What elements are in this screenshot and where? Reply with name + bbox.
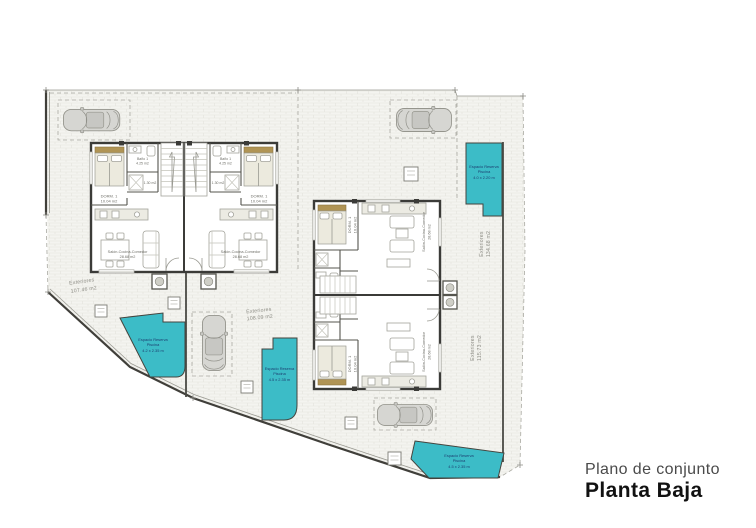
utility-box-icon <box>95 305 107 317</box>
living-area: 28.68 m2 <box>233 255 249 259</box>
plan-title: Planta Baja <box>585 479 720 502</box>
bath-label: Baño 1 <box>137 157 148 161</box>
pool-dimensions: 4.2 x 2.35 m <box>142 348 163 353</box>
utility-box-icon <box>345 417 357 429</box>
bath-area: 4.25 m2 <box>219 162 232 166</box>
living-area: 28.68 m2 <box>120 255 136 259</box>
title-block: Plano de conjunto Planta Baja <box>585 461 720 502</box>
utility-box-icon <box>404 167 418 181</box>
site-plan-drawing: DORM. 1 10.04 m2 Baño 1 4.25 m2 1.30 m2 … <box>0 0 756 528</box>
closet-area: 1.30 m2 <box>212 181 225 185</box>
pool-dimensions: 4.5 x 2.35 m <box>448 464 469 469</box>
car-icon <box>200 315 227 370</box>
closet-area: 1.30 m2 <box>144 181 157 185</box>
bath-area: 4.25 m2 <box>136 162 149 166</box>
porch-planter-icon <box>155 277 164 286</box>
car-icon <box>377 402 432 427</box>
bedroom-area: 10.04 m2 <box>353 216 358 233</box>
left-building <box>90 141 279 289</box>
bedroom-area: 10.04 m2 <box>353 355 358 372</box>
living-label: Salón-Cocina-Comedor <box>108 250 148 254</box>
pool-label: Piscina <box>147 342 160 347</box>
bedroom-label: DORM. 1 <box>347 355 352 372</box>
porch-planter-icon <box>204 277 213 286</box>
pool-dimensions: 4.0 x 2.20 m <box>473 175 494 180</box>
living-area: 28.68 m2 <box>428 344 432 360</box>
utility-box-icon <box>168 297 180 309</box>
pool-dimensions: 4.5 x 2.35 m <box>269 377 290 382</box>
exterior-area: 134.68 m2 <box>486 231 492 257</box>
floor-plan-page: DORM. 1 10.04 m2 Baño 1 4.25 m2 1.30 m2 … <box>0 0 756 528</box>
bedroom-label: DORM. 1 <box>347 216 352 233</box>
pool-label: Piscina <box>478 169 491 174</box>
exterior-area: 115.73 m2 <box>477 335 483 361</box>
pool-label: Piscina <box>273 371 286 376</box>
bath-label: Baño 1 <box>220 157 231 161</box>
living-label: Salón-Cocina-Comedor <box>422 331 426 371</box>
right-building <box>313 199 457 391</box>
bedroom-area: 10.04 m2 <box>101 199 118 204</box>
plan-subtitle: Plano de conjunto <box>585 461 720 479</box>
living-area: 28.68 m2 <box>428 224 432 240</box>
exterior-label: Exteriores <box>479 231 485 257</box>
bedroom-area: 10.04 m2 <box>251 199 268 204</box>
car-icon <box>63 107 119 132</box>
living-label: Salón-Cocina-Comedor <box>422 211 426 251</box>
pool-label: Piscina <box>453 458 466 463</box>
utility-box-icon <box>388 452 401 465</box>
utility-box-icon <box>241 381 253 393</box>
living-label: Salón-Cocina-Comedor <box>221 250 261 254</box>
exterior-label: Exteriores <box>470 335 476 361</box>
car-icon <box>396 106 451 133</box>
